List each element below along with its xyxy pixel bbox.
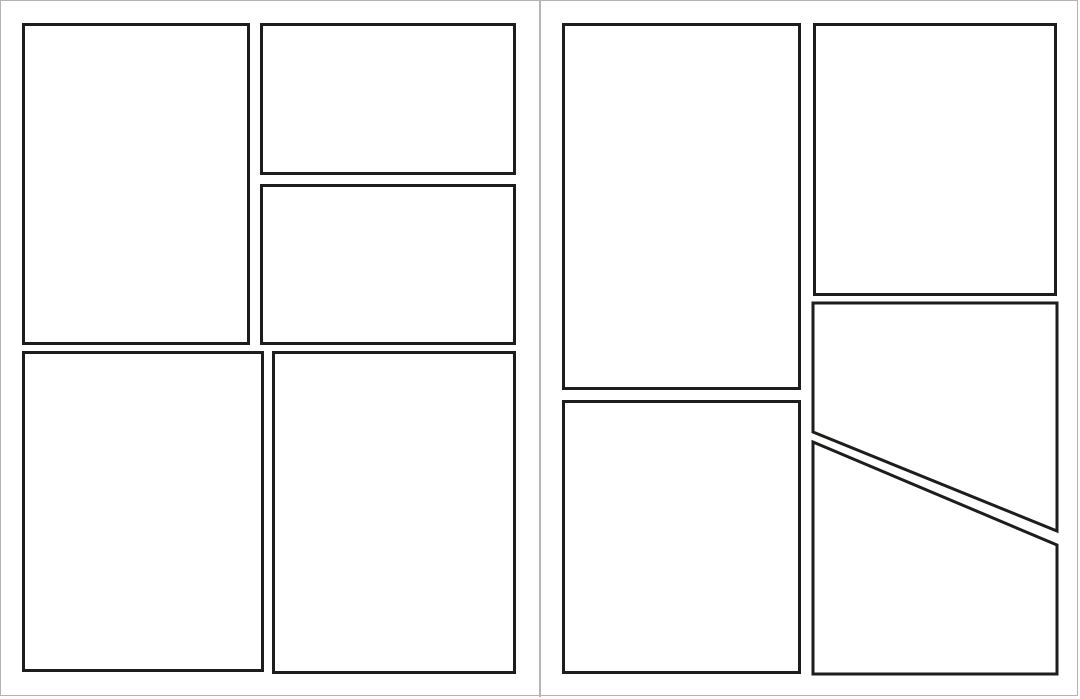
panel-7-top-right (815, 25, 1056, 295)
panel-5-bottom-right (274, 353, 515, 673)
comic-template-canvas (0, 0, 1080, 699)
panel-6-tall-top-left (564, 25, 800, 389)
panel-3-top-right-lower (262, 186, 515, 344)
right-page (564, 25, 1058, 675)
panel-1-tall-top-left (24, 25, 249, 344)
panel-9-bottom-left (564, 402, 800, 673)
left-page (24, 25, 515, 673)
panel-4-bottom-left (24, 353, 263, 671)
panel-2-top-right-upper (262, 25, 515, 174)
page-divider-line (539, 0, 541, 697)
